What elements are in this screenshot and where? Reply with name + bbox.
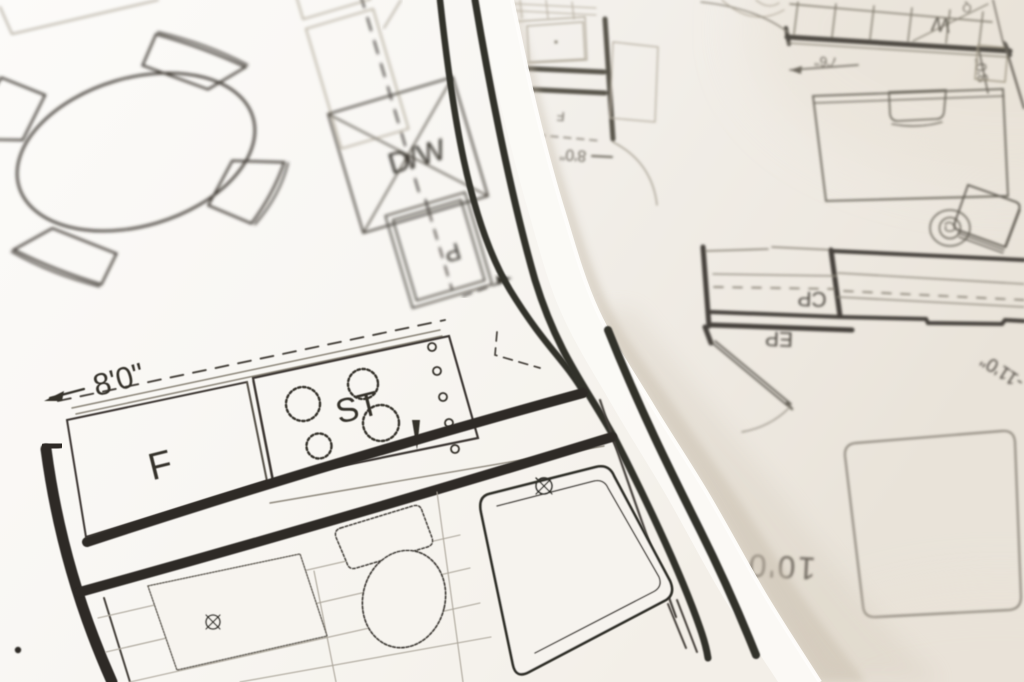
svg-text:EP: EP <box>765 327 794 351</box>
svg-text:CP: CP <box>797 286 827 310</box>
svg-text:F: F <box>556 109 565 125</box>
svg-text:7'6": 7'6" <box>814 53 838 71</box>
svg-text:8'0": 8'0" <box>559 145 587 164</box>
svg-text:Q: Q <box>962 0 973 15</box>
svg-text:W: W <box>930 12 952 36</box>
